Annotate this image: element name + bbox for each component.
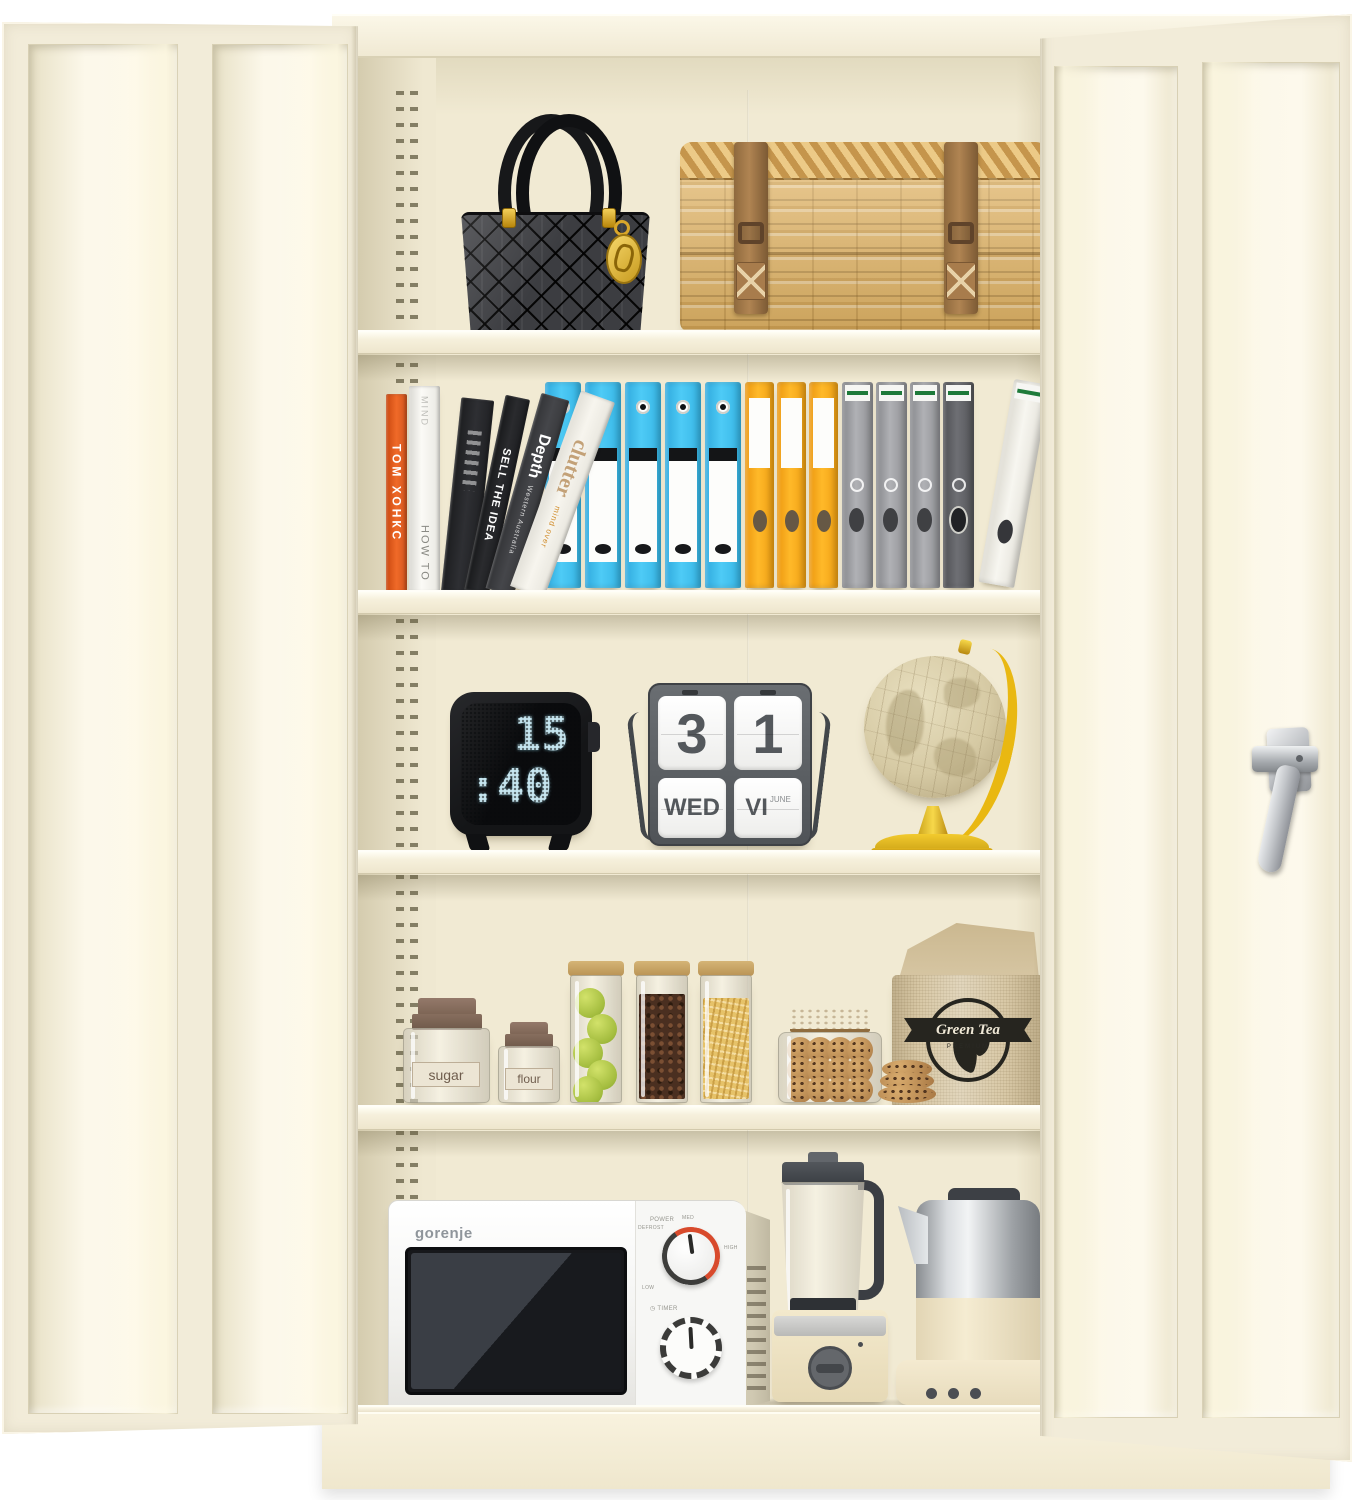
book-title: HOW TO (419, 525, 431, 582)
cabinet-interior: ТОМ ХОНКС MIND HOW TO SELL THE IDEA Dept… (352, 20, 1068, 1412)
globe (857, 638, 1017, 854)
left-door-panel (28, 44, 178, 1414)
canister-limes (570, 961, 622, 1103)
binder (842, 382, 873, 588)
handbag-rivet-icon (502, 208, 516, 228)
base-button-icon (948, 1388, 959, 1399)
cocoa-fill (639, 994, 685, 1099)
binder-logo-icon (675, 544, 691, 554)
clock-leg (466, 834, 491, 851)
strap-keeper (946, 262, 976, 300)
shelf-board (352, 330, 1068, 354)
binder-logo-icon (715, 544, 731, 554)
shelf-board (352, 590, 1068, 614)
shelf-under-shadow (352, 1131, 1068, 1157)
book-subtitle: mind over (539, 505, 563, 550)
microwave-window (405, 1247, 627, 1395)
canister-lid (634, 961, 690, 976)
cabinet-floor-edge (352, 1405, 1068, 1412)
charm-detail (612, 242, 636, 274)
binder-logo-icon (595, 544, 611, 554)
pixel-matrix-overlay (461, 703, 581, 825)
basket-strap (734, 142, 768, 314)
kettle-base (896, 1360, 1056, 1405)
control-panel: POWER DEFROST MED HIGH LOW ◷ TIMER (635, 1201, 746, 1408)
right-door-edge (1040, 14, 1047, 1462)
power-dial (662, 1227, 720, 1285)
power-level-label: MED (682, 1215, 694, 1221)
timer-dial-pointer (688, 1327, 693, 1349)
timer-label: ◷ TIMER (650, 1305, 678, 1312)
strap-buckle-icon (738, 222, 764, 244)
binder-hole-icon (753, 510, 767, 532)
left-door-edge (351, 22, 358, 1434)
right-door (1040, 14, 1352, 1462)
left-door (2, 22, 358, 1434)
binder (777, 382, 806, 588)
canister-lid (698, 961, 754, 976)
binder-ring-icon (952, 478, 966, 492)
binder-hole-icon (817, 510, 831, 532)
book-cover-marks (461, 430, 481, 491)
binder-logo-icon (635, 544, 651, 554)
binder (665, 382, 701, 588)
base-button-icon (970, 1388, 981, 1399)
binder-group-gray (842, 382, 974, 588)
cookie (847, 1077, 873, 1103)
blender-base (772, 1310, 888, 1402)
cookie-jar (778, 1008, 882, 1103)
base-button-icon (926, 1388, 937, 1399)
power-led (858, 1342, 863, 1347)
cookie-stack (878, 1060, 938, 1103)
binder (809, 382, 838, 588)
binder (745, 382, 774, 588)
blender-lid (782, 1162, 864, 1185)
left-door-panel (212, 44, 348, 1414)
binder-ring-icon (918, 478, 932, 492)
binder-label (813, 398, 834, 468)
canister-lid (568, 961, 624, 976)
kettle-body-lower (916, 1298, 1040, 1368)
jar-glass (778, 1032, 882, 1103)
binder-hole-icon (996, 518, 1015, 544)
binder-group-orange (745, 382, 838, 588)
strap-buckle-icon (948, 222, 974, 244)
book: MIND HOW TO (409, 386, 440, 592)
power-level-label: LOW (642, 1285, 654, 1291)
binder-ring-icon (850, 478, 864, 492)
book-title: MIND (420, 396, 430, 427)
cookie (878, 1085, 936, 1103)
binder-ring-icon (884, 478, 898, 492)
kettle-body-steel (916, 1200, 1040, 1302)
binder-label (879, 385, 904, 401)
binder-label (845, 385, 870, 401)
canister-body (700, 975, 752, 1103)
hinge-notch (760, 690, 776, 695)
month-name: JUNE (770, 795, 791, 804)
electric-kettle (896, 1168, 1056, 1405)
brand-text: Green Tea (936, 1022, 1000, 1039)
calendar-date-tile: 3 (658, 696, 726, 770)
jar-label-text: sugar (428, 1067, 463, 1083)
binder-label (749, 398, 770, 468)
flip-calendar: 3 1 WED VI JUNE (648, 683, 812, 846)
timer-label-text: TIMER (657, 1306, 677, 1312)
power-level-label: DEFROST (638, 1225, 664, 1231)
power-dial-arc (657, 1222, 724, 1289)
digital-clock: 15 :40 (450, 692, 592, 836)
calendar-weekday-tile: WED (658, 778, 726, 838)
book-stack: ТОМ ХОНКС MIND HOW TO SELL THE IDEA Dept… (372, 380, 582, 592)
binder-label (946, 385, 971, 401)
pasta-fill (703, 998, 749, 1099)
power-level-label: HIGH (724, 1245, 738, 1251)
canister-cocoa (636, 961, 688, 1103)
right-door-panel (1054, 66, 1178, 1418)
binder (943, 382, 974, 588)
cookies-fill (782, 1043, 878, 1100)
window-glass (411, 1253, 621, 1389)
flour-jar: flour (498, 1022, 560, 1103)
calendar-month-tile: VI JUNE (734, 778, 802, 838)
cork-lid (790, 1008, 870, 1032)
sugar-jar: sugar (403, 998, 490, 1103)
lime-fruit (573, 1076, 603, 1103)
shelf-under-shadow (352, 875, 1068, 901)
clock-leg (548, 834, 573, 851)
power-label: POWER (650, 1217, 674, 1223)
binder-hole-icon (883, 508, 898, 532)
binder-hole-icon (849, 508, 864, 532)
microwave: gorenje POWER DEFROST MED HIGH LOW ◷ TIM… (388, 1200, 770, 1407)
jar-label: sugar (412, 1062, 480, 1087)
month-roman: VI (745, 794, 768, 822)
date-digit: 3 (676, 701, 707, 766)
book-title: ТОМ ХОНКС (390, 444, 404, 542)
wicker-basket (680, 142, 1048, 332)
hinge-notch (682, 690, 698, 695)
canister-body (636, 975, 688, 1103)
binder-eyelet-icon (716, 400, 730, 414)
book: ТОМ ХОНКС (386, 394, 407, 592)
microwave-side-panel (743, 1210, 770, 1407)
binder-eyelet-icon (676, 400, 690, 414)
binder (876, 382, 907, 588)
binder (910, 382, 941, 588)
shelf-board (352, 850, 1068, 874)
base-silver-band (774, 1316, 886, 1336)
blender (770, 1152, 890, 1407)
clock-knob (588, 722, 600, 752)
microwave-brand: gorenje (415, 1225, 473, 1242)
binder-hole-icon (951, 508, 966, 532)
blender-dial (808, 1346, 852, 1390)
handle-screw-icon (1296, 755, 1303, 762)
grade-text: PREMIUM (926, 1044, 1010, 1050)
binder-eyelet-icon (636, 400, 650, 414)
canister-body (570, 975, 622, 1103)
strap-keeper (736, 262, 766, 300)
vent-grille-icon (747, 1266, 766, 1397)
binder-hole-icon (917, 508, 932, 532)
jar-label-text: flour (517, 1072, 540, 1086)
binder-hole-icon (785, 510, 799, 532)
basket-strap (944, 142, 978, 314)
shelf-under-shadow (352, 355, 1068, 381)
calendar-date-tile: 1 (734, 696, 802, 770)
canister-pasta (700, 961, 752, 1103)
binder-label (781, 398, 802, 468)
shelf-board (352, 1105, 1068, 1130)
microwave-front: gorenje POWER DEFROST MED HIGH LOW ◷ TIM… (388, 1200, 745, 1407)
date-digit: 1 (752, 701, 783, 766)
binder (705, 382, 741, 588)
logo-banner: Green Tea (904, 1018, 1032, 1042)
jar-label: flour (505, 1068, 553, 1090)
binder (625, 382, 661, 588)
timer-dial (660, 1317, 722, 1379)
dial-bar (816, 1364, 844, 1373)
book-title: Depth (524, 432, 554, 481)
clock-screen: 15 :40 (461, 703, 581, 825)
weekday-text: WED (664, 794, 720, 822)
charm-pendant-icon (606, 234, 642, 284)
product-photo-scene: ТОМ ХОНКС MIND HOW TO SELL THE IDEA Dept… (0, 0, 1360, 1500)
binder-label (913, 385, 938, 401)
